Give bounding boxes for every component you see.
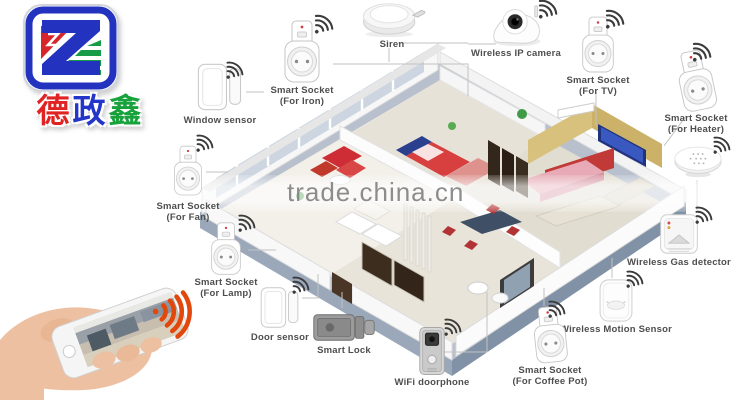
device-label: Siren [380,40,405,51]
watermark-text: trade.china.cn [287,177,464,208]
zx-logo-icon [18,2,124,96]
device-label: Wireless IP camera [471,49,561,60]
device-siren: Siren [348,0,436,51]
siren-icon [358,0,426,38]
device-wireless-ip-camera: Wireless IP camera [464,2,568,60]
device-label: Wireless Gas detector [627,258,731,269]
device-label: Door sensor [251,333,309,344]
device-label: Smart Lock [317,346,371,357]
device-wireless-hub [672,142,724,179]
device-window-sensor: Window sensor [178,60,262,127]
brand-logo: 德 政 鑫 [18,2,160,127]
brand-chinese-name: 德 政 鑫 [18,94,160,127]
device-smart-socket-fan: Smart Socket (For Fan) [146,142,230,224]
brand-char-1: 德 [37,94,70,127]
device-label: WiFi doorphone [394,378,469,389]
device-smart-socket-iron: Smart Socket (For Iron) [260,20,344,108]
device-label: Smart Socket (For Coffee Pot) [513,366,588,388]
watermark-band: trade.china.cn [0,175,750,212]
device-smart-socket-tv: Smart Socket (For TV) [558,16,638,98]
device-label: Smart Socket (For Iron) [270,86,333,108]
device-label: Smart Socket (For Lamp) [194,278,257,300]
brand-char-2: 政 [73,94,106,127]
device-label: Smart Socket (For TV) [566,76,629,98]
device-smart-socket-heater: Smart Socket (For Heater) [648,50,744,136]
device-smart-socket-lamp: Smart Socket (For Lamp) [186,222,266,300]
device-smart-socket-coffee-pot: Smart Socket (For Coffee Pot) [504,306,596,388]
brand-char-3: 鑫 [109,94,142,127]
device-wifi-doorphone: WiFi doorphone [388,326,476,389]
device-wireless-gas-detector: Wireless Gas detector [620,212,738,269]
device-label: Window sensor [184,116,257,127]
device-label: Smart Socket (For Fan) [156,202,219,224]
smart-lock-icon [311,310,377,344]
smart-home-diagram: trade.china.cn 德 政 鑫 [0,0,750,400]
